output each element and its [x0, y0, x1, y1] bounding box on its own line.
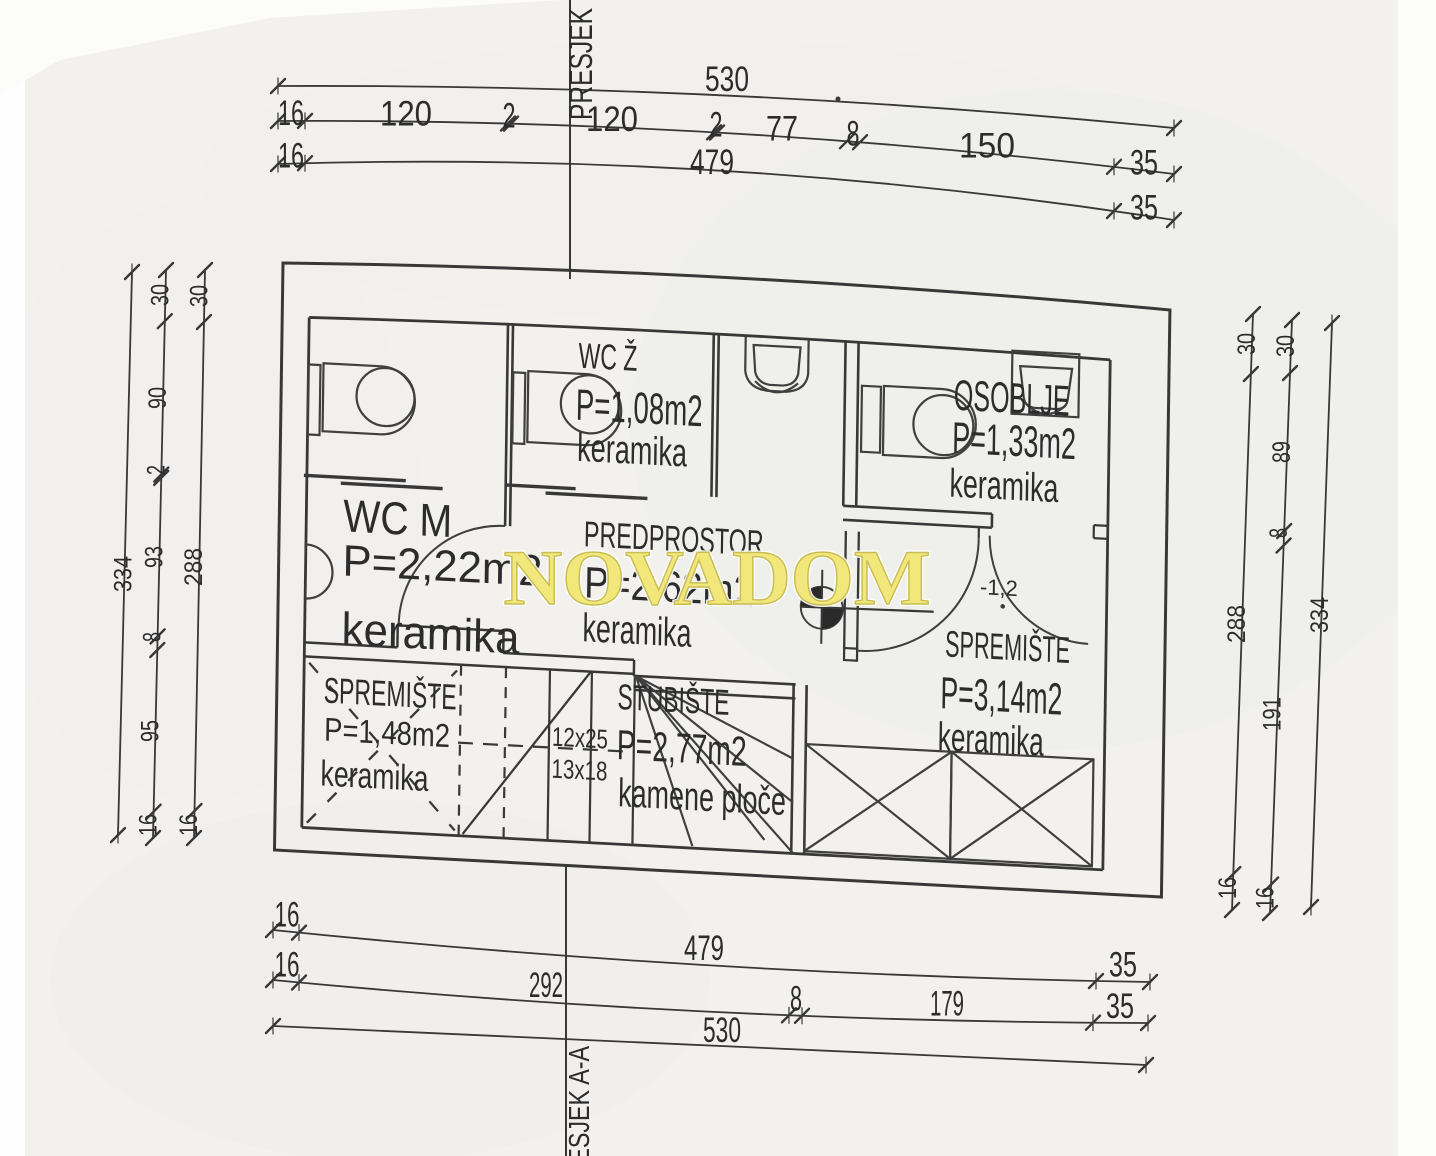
- svg-text:35: 35: [1130, 143, 1158, 182]
- svg-text:16: 16: [278, 94, 304, 133]
- svg-text:530: 530: [705, 60, 749, 99]
- svg-text:30: 30: [146, 284, 174, 306]
- svg-text:PRESJEK A-A: PRESJEK A-A: [564, 1045, 596, 1156]
- svg-text:150: 150: [959, 126, 1015, 165]
- svg-text:8: 8: [1265, 528, 1293, 538]
- svg-text:77: 77: [766, 110, 798, 149]
- svg-text:PRESJEK: PRESJEK: [563, 8, 599, 120]
- svg-text:16: 16: [1214, 877, 1242, 899]
- svg-text:93: 93: [140, 546, 168, 568]
- svg-text:89: 89: [1268, 441, 1296, 463]
- svg-text:35: 35: [1109, 946, 1137, 985]
- svg-text:P=1,33m2: P=1,33m2: [952, 414, 1077, 470]
- svg-text:13x18: 13x18: [551, 754, 607, 787]
- svg-text:STUBIŠTE: STUBIŠTE: [617, 676, 729, 723]
- svg-text:keramika: keramika: [949, 461, 1059, 511]
- svg-text:keramika: keramika: [577, 426, 688, 476]
- svg-text:keramika: keramika: [341, 602, 520, 663]
- svg-text:2: 2: [710, 105, 723, 144]
- svg-text:WC Ž: WC Ž: [578, 335, 638, 379]
- svg-text:8: 8: [790, 980, 802, 1019]
- svg-text:530: 530: [703, 1011, 741, 1050]
- svg-text:P=1,48m2: P=1,48m2: [324, 711, 450, 755]
- svg-text:120: 120: [380, 95, 432, 134]
- svg-text:288: 288: [180, 548, 208, 586]
- svg-text:95: 95: [136, 720, 164, 742]
- svg-text:35: 35: [1106, 987, 1134, 1026]
- svg-text:SPREMIŠTE: SPREMIŠTE: [323, 669, 456, 717]
- svg-text:191: 191: [1258, 697, 1286, 731]
- svg-text:16: 16: [275, 895, 300, 934]
- svg-text:8: 8: [847, 115, 860, 154]
- svg-text:292: 292: [529, 966, 563, 1005]
- svg-text:479: 479: [690, 143, 734, 182]
- svg-text:8: 8: [139, 632, 167, 642]
- svg-text:16: 16: [1252, 887, 1280, 909]
- svg-text:179: 179: [930, 984, 964, 1023]
- svg-text:SPREMIŠTE: SPREMIŠTE: [945, 623, 1070, 671]
- svg-text:16: 16: [175, 814, 203, 836]
- svg-text:90: 90: [144, 387, 172, 409]
- svg-text:334: 334: [110, 556, 138, 592]
- svg-text:12x25: 12x25: [552, 722, 608, 755]
- svg-text:16: 16: [134, 814, 162, 836]
- svg-text:479: 479: [684, 929, 724, 968]
- svg-text:-1,2: -1,2: [980, 574, 1018, 601]
- svg-text:kamene ploče: kamene ploče: [618, 771, 786, 824]
- svg-text:keramika: keramika: [320, 752, 429, 799]
- svg-text:30: 30: [1272, 335, 1300, 357]
- svg-text:30: 30: [186, 285, 214, 307]
- svg-text:P=2,77m2: P=2,77m2: [617, 721, 748, 775]
- svg-text:16: 16: [275, 945, 300, 984]
- svg-text:30: 30: [1233, 333, 1261, 355]
- svg-text:35: 35: [1130, 188, 1158, 227]
- svg-text:NOVADOM: NOVADOM: [504, 534, 931, 621]
- svg-text:288: 288: [1223, 605, 1251, 643]
- svg-text:334: 334: [1306, 597, 1334, 633]
- svg-text:2: 2: [503, 97, 516, 136]
- svg-text:2: 2: [142, 465, 170, 475]
- svg-text:keramika: keramika: [938, 715, 1045, 765]
- svg-text:16: 16: [278, 137, 304, 176]
